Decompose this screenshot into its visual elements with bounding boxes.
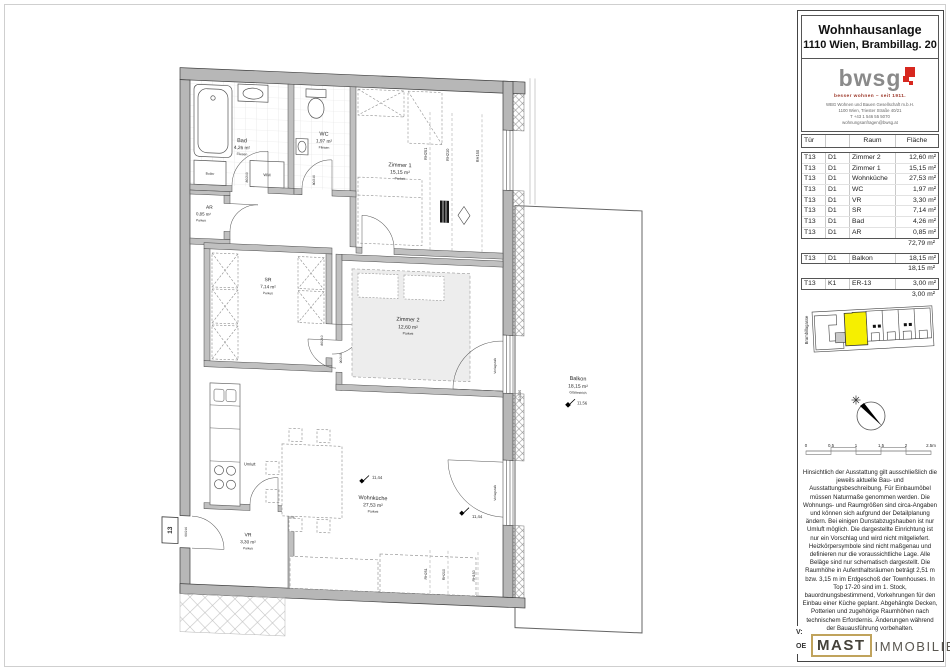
table-cell: 3,00 m²	[896, 279, 938, 289]
col-tuer: Tür	[802, 135, 826, 147]
table-cell: D1	[826, 153, 850, 163]
footer-codes: V: OE	[795, 626, 807, 654]
table-row: T13D1VR3,30 m²	[802, 195, 938, 206]
table-cell: 12,60 m²	[896, 153, 938, 163]
table-cell: VR	[850, 196, 896, 206]
rh150-label-wk: RH150	[472, 570, 476, 581]
radiator-icon	[440, 200, 449, 222]
site-plan: Brambillagasse	[801, 299, 940, 361]
table-cell: Zimmer 1	[850, 164, 896, 174]
table-cell: D1	[826, 174, 850, 184]
balkon-room: Balkon 18,15 m² Glättestrich 11,56 110/2…	[515, 206, 642, 633]
table-cell: Wohnküche	[850, 174, 896, 184]
immobilien-wordmark: IMMOBILIEN	[875, 640, 950, 657]
north-arrow	[801, 389, 940, 439]
walkway-hatch	[180, 594, 285, 636]
wc-name: WC	[319, 131, 328, 137]
table-row: T13D1SR7,14 m²	[802, 205, 938, 216]
table-cell: D1	[826, 206, 850, 216]
drawing-sheet: Balkon 18,15 m² Glättestrich 11,56 110/2…	[0, 0, 950, 671]
site-buildings	[812, 306, 934, 352]
zimmer1-name: Zimmer 1	[388, 162, 411, 169]
rh210-label-wk: RH210	[442, 569, 446, 580]
table-cell: T13	[802, 196, 826, 206]
umluft-label: Umluft	[244, 461, 256, 467]
table-cell: T13	[802, 185, 826, 195]
sr-name: SR	[265, 277, 272, 283]
table-row: T13D1WC1,97 m²	[802, 184, 938, 195]
wohnkueche-floor: Parkett	[368, 509, 379, 513]
scale-bar: 0 0.5 1 1.5 2 2.5m	[801, 441, 940, 461]
balkon-floor: Glättestrich	[569, 390, 586, 395]
table-cell: D1	[826, 217, 850, 227]
rh251-label-wk: RH251	[424, 568, 428, 579]
rh150-label-z1: RH150	[475, 149, 480, 162]
table-cell: AR	[850, 228, 896, 238]
zimmer2-floor: Parkett	[403, 331, 414, 335]
table-cell: T13	[802, 164, 826, 174]
entry-door-dim: 99/210	[184, 527, 188, 537]
table-cell: D1	[826, 228, 850, 238]
street-label: Brambillagasse	[804, 315, 809, 344]
vr-area: 3,30 m²	[240, 539, 256, 545]
table-row: T13D1Balkon18,15 m²	[802, 254, 938, 264]
table-cell: D1	[826, 185, 850, 195]
table-row: T13D1Wohnküche27,53 m²	[802, 173, 938, 184]
north-star-icon	[852, 396, 861, 405]
table-cell: ER-13	[850, 279, 896, 289]
table-cell: 27,53 m²	[896, 174, 938, 184]
zimmer1-area: 15,15 m²	[390, 169, 410, 176]
wc-tiles	[294, 84, 350, 190]
room-table-header: Tür Raum Fläche	[801, 134, 939, 148]
bad-door-dim: 80/210	[245, 172, 249, 182]
col-flaeche: Fläche	[896, 135, 938, 147]
ar-floor: Parkett	[196, 218, 206, 222]
vorlegstufe-label-1: Vorlegstufe	[493, 358, 497, 374]
bad-area: 4,26 m²	[234, 145, 251, 152]
vorlegstufe-label-2: Vorlegstufe	[493, 485, 497, 501]
elevation-marker-b	[459, 507, 469, 516]
zimmer2-door-dim: 90/210	[339, 353, 343, 363]
svg-text:11,56: 11,56	[577, 400, 588, 405]
vent-icon	[458, 206, 470, 225]
project-title-box: Wohnhausanlage 1110 Wien, Brambillag. 20	[801, 15, 939, 59]
bad-name: Bad	[237, 138, 247, 144]
elevation-marker-a	[359, 475, 369, 484]
wc-area: 1,97 m²	[316, 138, 333, 145]
table-cell: D1	[826, 164, 850, 174]
bwsg-wordmark: bwsg	[839, 65, 902, 91]
table-cell: Zimmer 2	[850, 153, 896, 163]
col-raum: Raum	[850, 135, 896, 147]
bad-floor: Fliesen	[237, 152, 248, 156]
boiler-label: Boiler	[206, 172, 216, 176]
bwsg-logo: bwsg	[839, 67, 902, 93]
table-cell: T13	[802, 228, 826, 238]
ar-name: AR	[206, 205, 213, 211]
sr-area: 7,14 m²	[260, 284, 276, 290]
table-cell: D1	[826, 196, 850, 206]
table-row: T13D1Bad4,26 m²	[802, 216, 938, 227]
wc-door-dim: 80/210	[312, 175, 316, 185]
sr-floor: Parkett	[263, 291, 273, 295]
room-table-group: T13D1Balkon18,15 m²	[801, 253, 939, 265]
table-cell: T13	[802, 206, 826, 216]
elev-a-label: 11,44	[372, 475, 383, 480]
vr-floor: Parkett	[243, 546, 253, 550]
table-cell: 0,85 m²	[896, 228, 938, 238]
vr-name: VR	[245, 532, 252, 538]
wohnkueche-area: 27,53 m²	[363, 502, 383, 509]
zimmer2-area: 12,60 m²	[398, 324, 418, 331]
footer-v: V:	[796, 626, 806, 640]
room-table: Tür Raum Fläche T13D1Zimmer 212,60 m²T13…	[801, 134, 939, 300]
mast-immobilien-logo: MAST IMMOBILIEN	[811, 634, 950, 657]
table-cell: Bad	[850, 217, 896, 227]
table-cell: T13	[802, 217, 826, 227]
highlighted-unit	[844, 312, 868, 346]
room-table-group: T13K1ER-133,00 m²	[801, 278, 939, 290]
bwsg-slogan: besser wohnen – seit 1911.	[802, 94, 938, 99]
table-row: T13K1ER-133,00 m²	[802, 279, 938, 289]
rh210-label-z1: RH210	[445, 148, 450, 161]
table-cell: 4,26 m²	[896, 217, 938, 227]
balkon-area: 18,15 m²	[568, 383, 588, 390]
sr-room	[212, 253, 324, 364]
wohnkueche-name: Wohnküche	[359, 495, 388, 502]
table-cell: WC	[850, 185, 896, 195]
table-row: T13D1Zimmer 115,15 m²	[802, 163, 938, 174]
room-table-group: T13D1Zimmer 212,60 m²T13D1Zimmer 115,15 …	[801, 152, 939, 239]
wm-label: WM	[263, 172, 270, 177]
apartment-plan: Balkon 18,15 m² Glättestrich 11,56 110/2…	[162, 63, 642, 651]
project-name: Wohnhausanlage	[802, 23, 938, 37]
dining-set	[266, 427, 342, 533]
scale-tick-0: 0	[805, 443, 808, 448]
bwsg-square-icon	[909, 81, 913, 85]
elev-b-label: 11,44	[472, 514, 483, 519]
table-cell: 1,97 m²	[896, 185, 938, 195]
table-cell: SR	[850, 206, 896, 216]
wc-floor: Fliesen	[319, 145, 330, 149]
footer-oe: OE	[796, 640, 806, 654]
table-cell: T13	[802, 174, 826, 184]
brand-box: bwsg besser wohnen – seit 1911. WBG Wohn…	[801, 58, 939, 132]
floor-plan: Balkon 18,15 m² Glättestrich 11,56 110/2…	[0, 0, 800, 671]
col-type	[826, 135, 850, 147]
disclaimer-text: Hinsichtlich der Ausstattung gilt aussch…	[802, 469, 938, 633]
ar-room	[230, 204, 258, 233]
table-cell: 15,15 m²	[896, 164, 938, 174]
entry-number: 13	[167, 526, 174, 534]
bwsg-address: WBG Wohnen und Bauen Gesellschaft m.b.H.…	[802, 102, 938, 126]
title-panel: Wohnhausanlage 1110 Wien, Brambillag. 20…	[797, 10, 944, 662]
table-row: T13D1AR0,85 m²	[802, 227, 938, 238]
table-cell: K1	[826, 279, 850, 289]
table-cell: 7,14 m²	[896, 206, 938, 216]
table-sum-row: 72,79 m²	[801, 239, 939, 249]
table-cell: D1	[826, 254, 850, 264]
zimmer2-name: Zimmer 2	[396, 317, 419, 324]
rh251-label-z1: RH251	[423, 147, 428, 160]
scale-segments	[806, 448, 931, 455]
table-sum-row: 18,15 m²	[801, 264, 939, 274]
wohnkueche-room	[210, 383, 503, 597]
balkon-name: Balkon	[570, 376, 587, 383]
table-cell: T13	[802, 153, 826, 163]
room-table-body: T13D1Zimmer 212,60 m²T13D1Zimmer 115,15 …	[801, 152, 939, 300]
table-cell: T13	[802, 279, 826, 289]
zimmer1-floor: Parkett	[395, 177, 406, 181]
table-cell: 18,15 m²	[896, 254, 938, 264]
table-row: T13D1Zimmer 212,60 m²	[802, 153, 938, 163]
zimmer1-room	[358, 89, 482, 252]
table-cell: T13	[802, 254, 826, 264]
table-cell: 3,30 m²	[896, 196, 938, 206]
table-cell: Balkon	[850, 254, 896, 264]
project-address: 1110 Wien, Brambillag. 20	[802, 39, 938, 51]
ar-area: 0,85 m²	[196, 211, 211, 217]
addr-line4: wohnungsanfragen@bwsg.at	[802, 120, 938, 126]
scale-tick-5: 2.5m	[926, 443, 936, 448]
sr-door-dim: 80/210	[320, 335, 324, 345]
mast-wordmark: MAST	[811, 634, 872, 657]
